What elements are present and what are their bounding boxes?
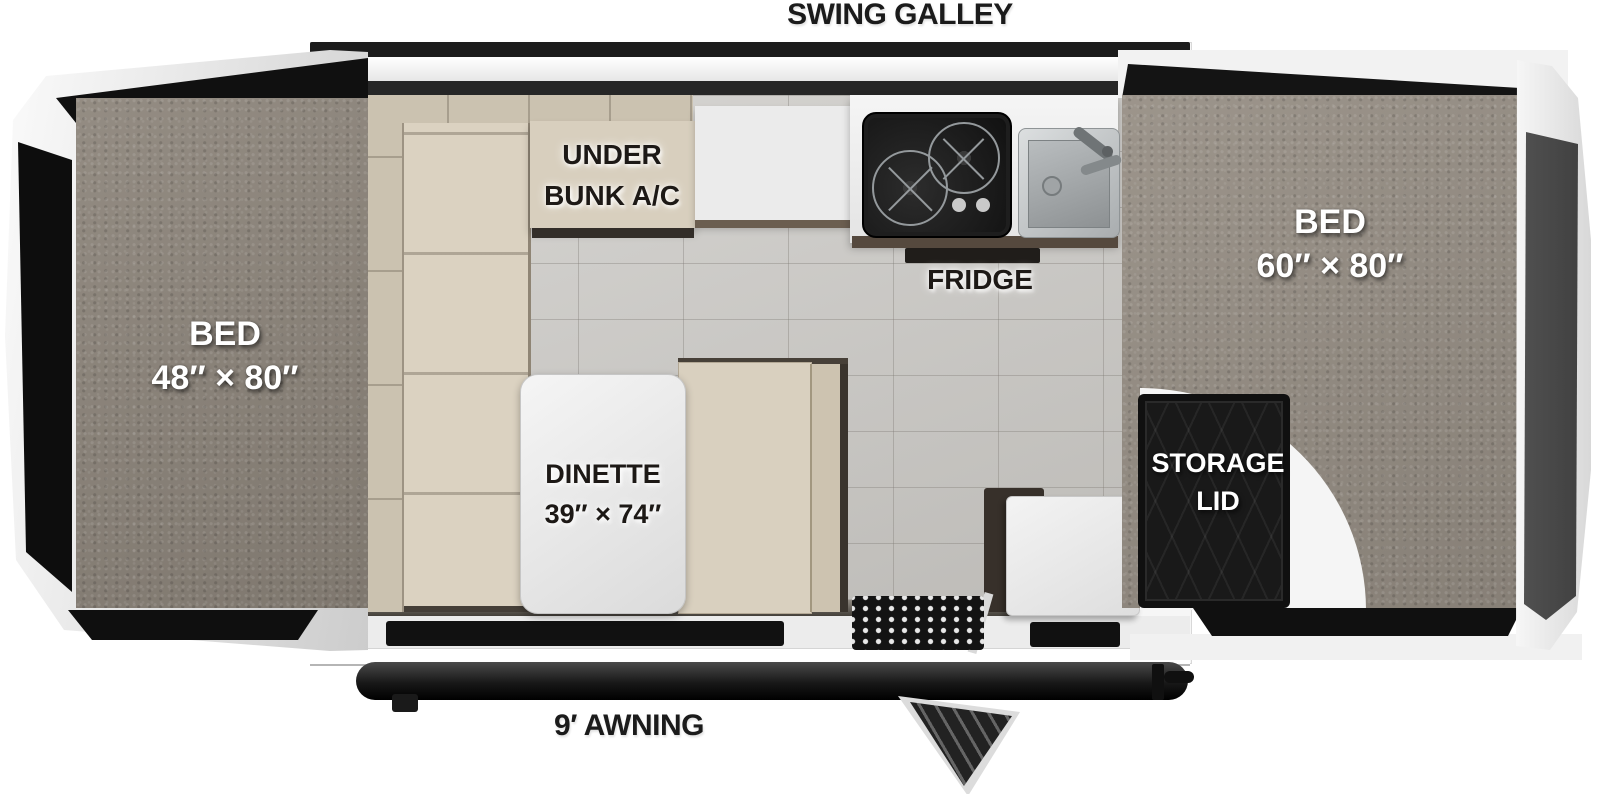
awning-bracket-right (1152, 664, 1164, 700)
stove-cooktop-icon (862, 112, 1012, 238)
sink-drain-icon (1042, 176, 1062, 196)
dinette-size-label: 39″ × 74″ (545, 494, 662, 534)
storage-lid-line2: LID (1128, 482, 1308, 520)
under-bunk-ac-label: UNDER BUNK A/C (522, 134, 702, 216)
sill-pad (1030, 622, 1120, 647)
galley-cabinet-edge (695, 220, 852, 228)
dinette-bench-seat (678, 362, 812, 614)
burner-icon (928, 122, 1000, 194)
faucet-knob-icon (1102, 146, 1113, 157)
interior-top-wall (368, 81, 1118, 95)
stove-knob-icon (976, 198, 990, 212)
right-bed-name: BED (1180, 200, 1480, 244)
galley-cabinet (695, 106, 852, 224)
storage-lid-line1: STORAGE (1128, 444, 1308, 482)
awning-label: 9′ AWNING (469, 709, 789, 743)
awning-bracket-left (392, 694, 418, 712)
right-bed-cap-bottom (1130, 634, 1582, 660)
door-cabinet (1006, 496, 1140, 616)
dinette-bench-frame (840, 364, 848, 612)
under-bunk-ac-line2: BUNK A/C (522, 175, 702, 216)
dinette-bench-back (810, 364, 842, 612)
sofa-back-left (368, 123, 404, 612)
fridge-label: FRIDGE (890, 264, 1070, 296)
left-bed-name: BED (90, 312, 360, 356)
storage-lid-label: STORAGE LID (1128, 444, 1308, 520)
swing-galley-label: SWING GALLEY (740, 0, 1060, 32)
floorplan-diagram: SWING GALLEY 9′ AWNING UNDER BUNK A/C FR… (0, 0, 1600, 794)
right-bed-cap-panel (1520, 126, 1582, 626)
sofa-seat-left (404, 123, 531, 612)
under-bunk-ac-line1: UNDER (522, 134, 702, 175)
entry-step-grate (852, 596, 984, 650)
ac-vent (532, 228, 694, 238)
top-sill (310, 57, 1190, 82)
swing-galley-wall (310, 42, 1190, 57)
dinette-label: DINETTE (545, 454, 661, 494)
dinette-table: DINETTE 39″ × 74″ (520, 374, 686, 614)
left-bed-label: BED 48″ × 80″ (90, 312, 360, 400)
awning-bracket-right-arm (1164, 671, 1194, 683)
awning-roller-bar (356, 662, 1188, 700)
fridge-unit (905, 248, 1040, 263)
sill-pad (386, 621, 784, 646)
right-bed-size: 60″ × 80″ (1180, 244, 1480, 288)
right-bed-label: BED 60″ × 80″ (1180, 200, 1480, 288)
sofa-trim (404, 606, 531, 612)
right-bed-tent-bottom (1190, 606, 1526, 640)
left-bed-size: 48″ × 80″ (90, 356, 360, 400)
stove-knob-icon (952, 198, 966, 212)
